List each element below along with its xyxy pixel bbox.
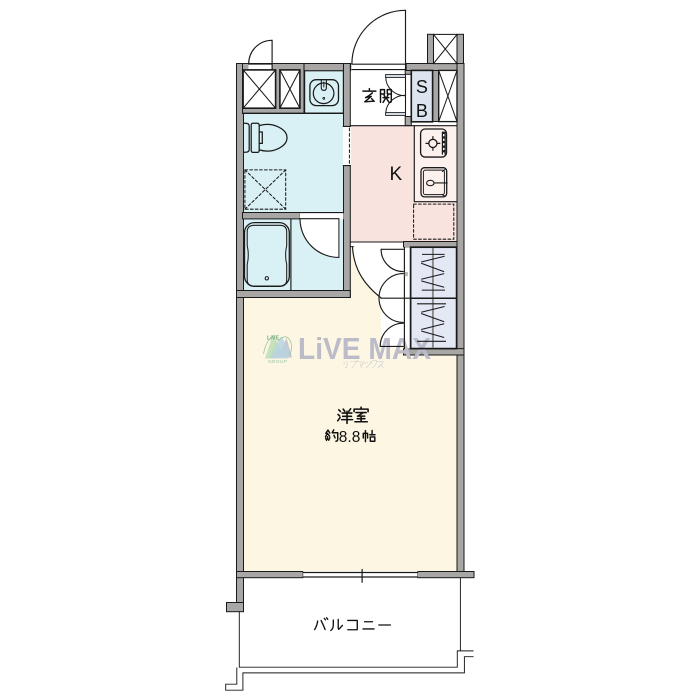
svg-text:8.8: 8.8 [339,429,361,446]
svg-text:B: B [416,101,428,121]
svg-text:S: S [416,77,428,97]
svg-text:GROUP: GROUP [268,359,287,365]
svg-text:K: K [390,164,403,185]
svg-text:LiVE: LiVE [267,336,280,342]
